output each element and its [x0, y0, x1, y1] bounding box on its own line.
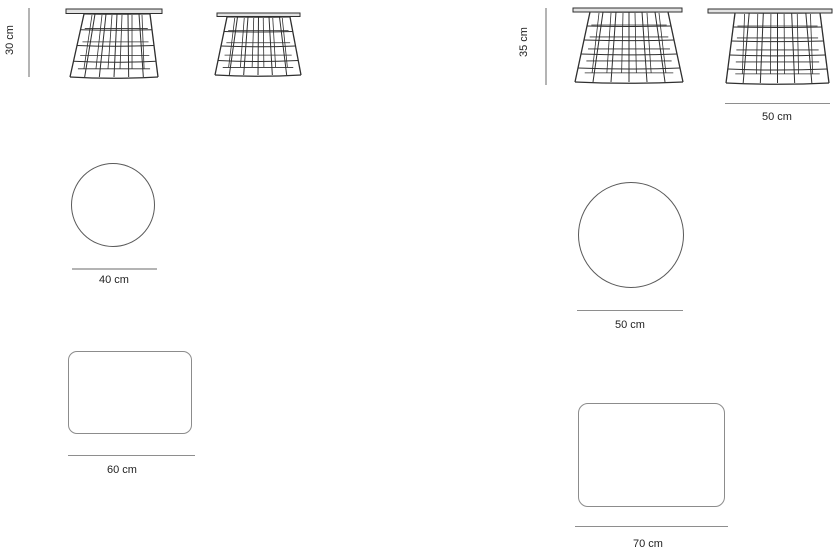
tabletop-top-view-circle-small: [71, 163, 155, 247]
width-dimension-line-large: [575, 526, 728, 527]
wire-table-side-view-icon: [703, 5, 833, 86]
width-dimension-line-small: [68, 455, 195, 456]
diameter-dimension-label-small: 40 cm: [84, 274, 144, 286]
height-dimension-line-large: [545, 8, 547, 85]
height-dimension-label-small: 30 cm: [4, 22, 16, 58]
tabletop-top-view-circle-large: [578, 182, 684, 288]
wire-table-side-view-icon: [210, 5, 305, 80]
diameter-dimension-label-large: 50 cm: [600, 319, 660, 331]
table-width-dimension-line-large: [725, 103, 830, 104]
wire-table-side-view-icon: [60, 5, 165, 83]
height-dimension-label-large: 35 cm: [518, 24, 530, 60]
tabletop-top-view-rect-small: [68, 351, 192, 434]
width-dimension-label-large: 70 cm: [618, 538, 678, 550]
tabletop-top-view-rect-large: [578, 403, 725, 507]
diameter-dimension-line-large: [577, 310, 683, 311]
table-width-dimension-label-large: 50 cm: [747, 111, 807, 123]
height-dimension-line-small: [28, 8, 30, 77]
width-dimension-label-small: 60 cm: [92, 464, 152, 476]
wire-table-side-view-icon: [568, 3, 686, 88]
diameter-dimension-line-small: [72, 268, 157, 270]
product-dimensions-diagram: 30 cm 40 cm 60 cm 35 cm 50 cm 50 cm 70 c…: [0, 0, 833, 554]
